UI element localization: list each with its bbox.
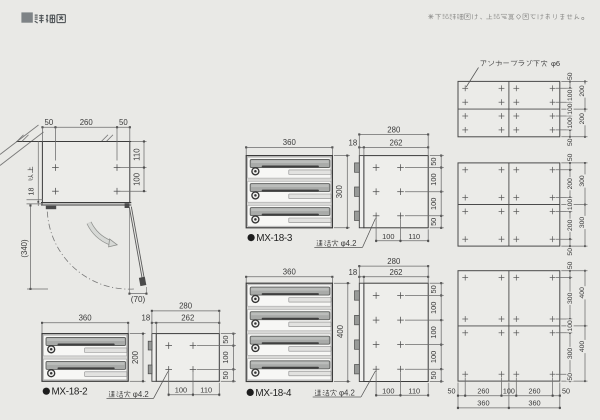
svg-text:300: 300 — [567, 292, 574, 304]
svg-text:100: 100 — [567, 199, 574, 211]
svg-text:50: 50 — [429, 285, 438, 293]
svg-text:260: 260 — [80, 118, 94, 127]
svg-text:260: 260 — [477, 387, 489, 396]
svg-text:100: 100 — [429, 173, 438, 185]
svg-text:360: 360 — [283, 138, 297, 147]
svg-text:360: 360 — [477, 399, 489, 408]
svg-text:280: 280 — [387, 257, 401, 266]
svg-text:18: 18 — [349, 139, 358, 148]
svg-text:50: 50 — [45, 118, 54, 127]
svg-text:200: 200 — [567, 178, 574, 190]
svg-text:200: 200 — [567, 219, 574, 231]
svg-text:φ4.2: φ4.2 — [133, 390, 149, 399]
svg-text:262: 262 — [389, 139, 402, 148]
svg-text:18: 18 — [27, 188, 36, 196]
svg-text:100: 100 — [429, 198, 438, 210]
svg-text:100: 100 — [503, 387, 515, 396]
svg-text:100: 100 — [567, 89, 574, 101]
svg-text:100: 100 — [429, 302, 438, 314]
svg-text:100: 100 — [133, 172, 142, 186]
svg-text:100: 100 — [567, 117, 574, 129]
svg-text:262: 262 — [389, 268, 402, 277]
svg-text:200: 200 — [131, 350, 140, 364]
svg-text:MX-18-3: MX-18-3 — [256, 233, 293, 244]
svg-text:φ4.2: φ4.2 — [339, 388, 355, 397]
svg-text:(70): (70) — [131, 295, 146, 304]
svg-text:100: 100 — [221, 351, 230, 363]
svg-text:50: 50 — [119, 118, 128, 127]
svg-text:300: 300 — [579, 175, 586, 187]
svg-text:110: 110 — [408, 232, 420, 241]
svg-text:50: 50 — [429, 371, 438, 379]
svg-text:18: 18 — [349, 268, 358, 277]
svg-text:50: 50 — [448, 387, 456, 396]
svg-text:50: 50 — [562, 387, 570, 396]
svg-text:400: 400 — [336, 324, 345, 338]
svg-text:18: 18 — [142, 314, 151, 323]
svg-text:280: 280 — [179, 302, 193, 311]
svg-text:360: 360 — [79, 314, 93, 323]
svg-text:262: 262 — [181, 314, 194, 323]
svg-text:100: 100 — [382, 387, 394, 396]
svg-text:50: 50 — [567, 261, 574, 269]
svg-text:400: 400 — [579, 287, 586, 299]
svg-text:φ4.2: φ4.2 — [341, 239, 357, 248]
svg-text:100: 100 — [429, 326, 438, 338]
svg-text:100: 100 — [175, 386, 187, 395]
svg-text:MX-18-2: MX-18-2 — [52, 387, 88, 398]
svg-text:φ6: φ6 — [551, 59, 560, 68]
svg-text:50: 50 — [429, 157, 438, 165]
svg-text:50: 50 — [221, 335, 230, 343]
svg-text:50: 50 — [429, 218, 438, 226]
svg-text:280: 280 — [387, 126, 401, 135]
svg-text:50: 50 — [567, 248, 574, 256]
svg-text:110: 110 — [133, 148, 142, 161]
svg-text:100: 100 — [429, 351, 438, 363]
svg-text:50: 50 — [567, 72, 574, 80]
svg-text:260: 260 — [529, 387, 541, 396]
svg-text:50: 50 — [221, 371, 230, 379]
svg-text:300: 300 — [579, 217, 586, 229]
svg-text:(340): (340) — [20, 239, 29, 258]
svg-text:110: 110 — [200, 386, 212, 395]
svg-text:50: 50 — [567, 153, 574, 161]
svg-text:300: 300 — [567, 348, 574, 360]
svg-text:200: 200 — [579, 113, 586, 125]
svg-text:100: 100 — [567, 103, 574, 115]
svg-text:400: 400 — [579, 341, 586, 353]
svg-text:50: 50 — [567, 373, 574, 381]
svg-text:50: 50 — [567, 138, 574, 146]
svg-text:300: 300 — [335, 185, 344, 199]
svg-text:MX-18-4: MX-18-4 — [255, 388, 292, 399]
svg-text:200: 200 — [579, 85, 586, 97]
svg-text:100: 100 — [382, 232, 394, 241]
svg-text:360: 360 — [283, 268, 297, 277]
svg-text:100: 100 — [567, 320, 574, 332]
svg-text:110: 110 — [408, 387, 420, 396]
svg-text:360: 360 — [528, 399, 540, 408]
